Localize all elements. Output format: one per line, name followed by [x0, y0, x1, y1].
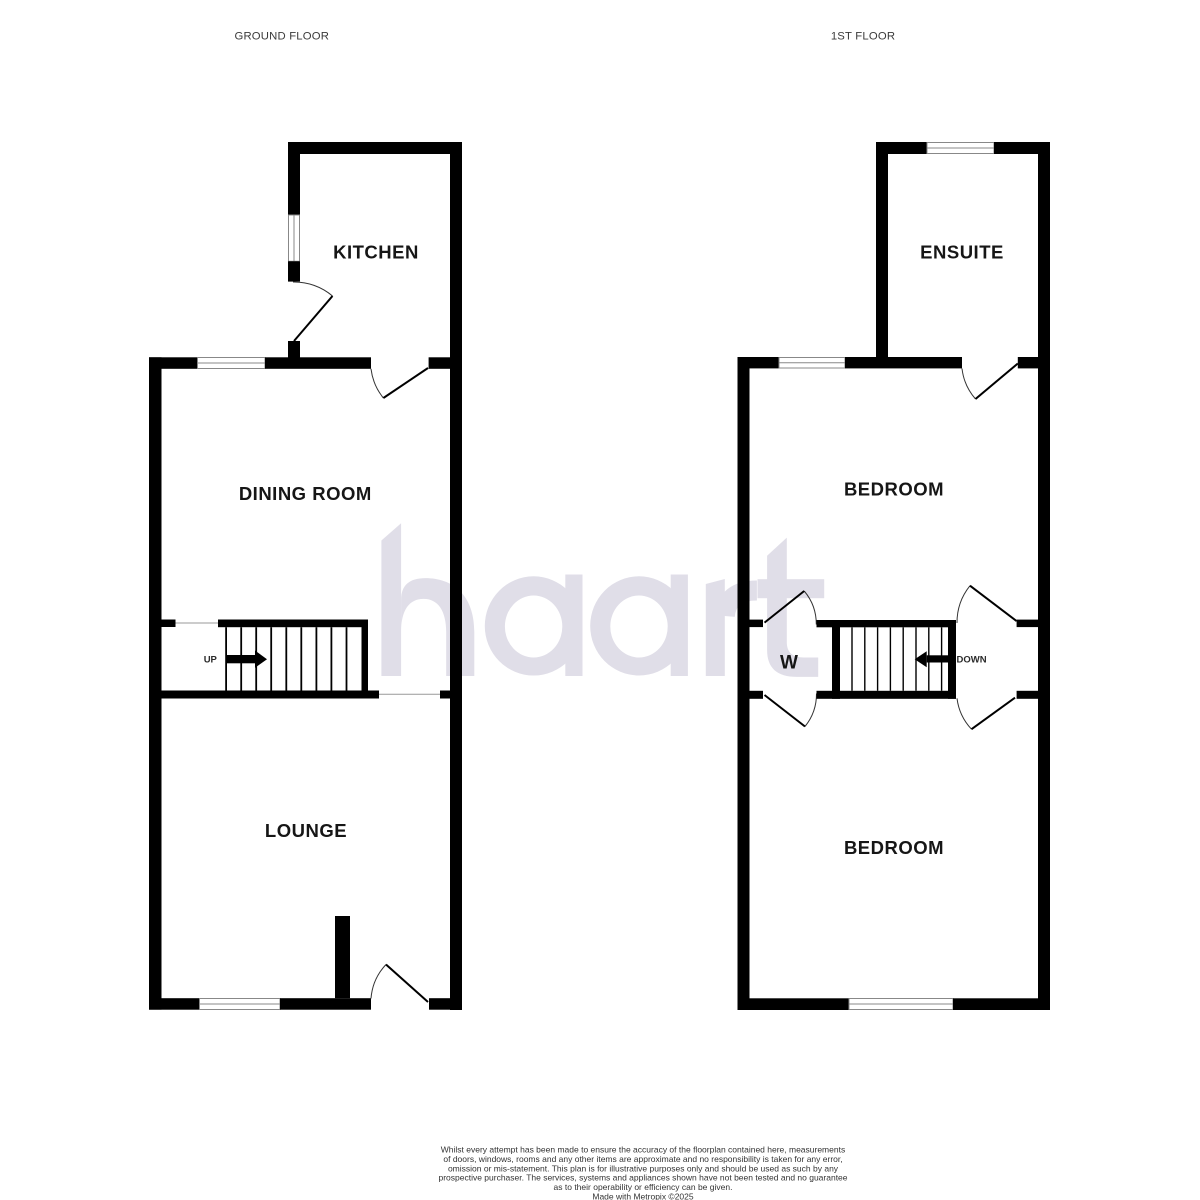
svg-text:KITCHEN: KITCHEN [333, 242, 419, 263]
svg-text:UP: UP [204, 654, 218, 665]
svg-text:Made with Metropix ©2025: Made with Metropix ©2025 [592, 1192, 694, 1200]
svg-text:W: W [780, 653, 798, 674]
svg-text:DOWN: DOWN [957, 655, 987, 666]
svg-text:1ST FLOOR: 1ST FLOOR [831, 31, 895, 43]
svg-text:GROUND FLOOR: GROUND FLOOR [234, 31, 329, 43]
svg-text:BEDROOM: BEDROOM [844, 479, 944, 500]
svg-text:LOUNGE: LOUNGE [265, 820, 347, 841]
svg-text:ENSUITE: ENSUITE [920, 242, 1004, 263]
svg-text:BEDROOM: BEDROOM [844, 837, 944, 858]
svg-text:DINING ROOM: DINING ROOM [239, 483, 372, 504]
